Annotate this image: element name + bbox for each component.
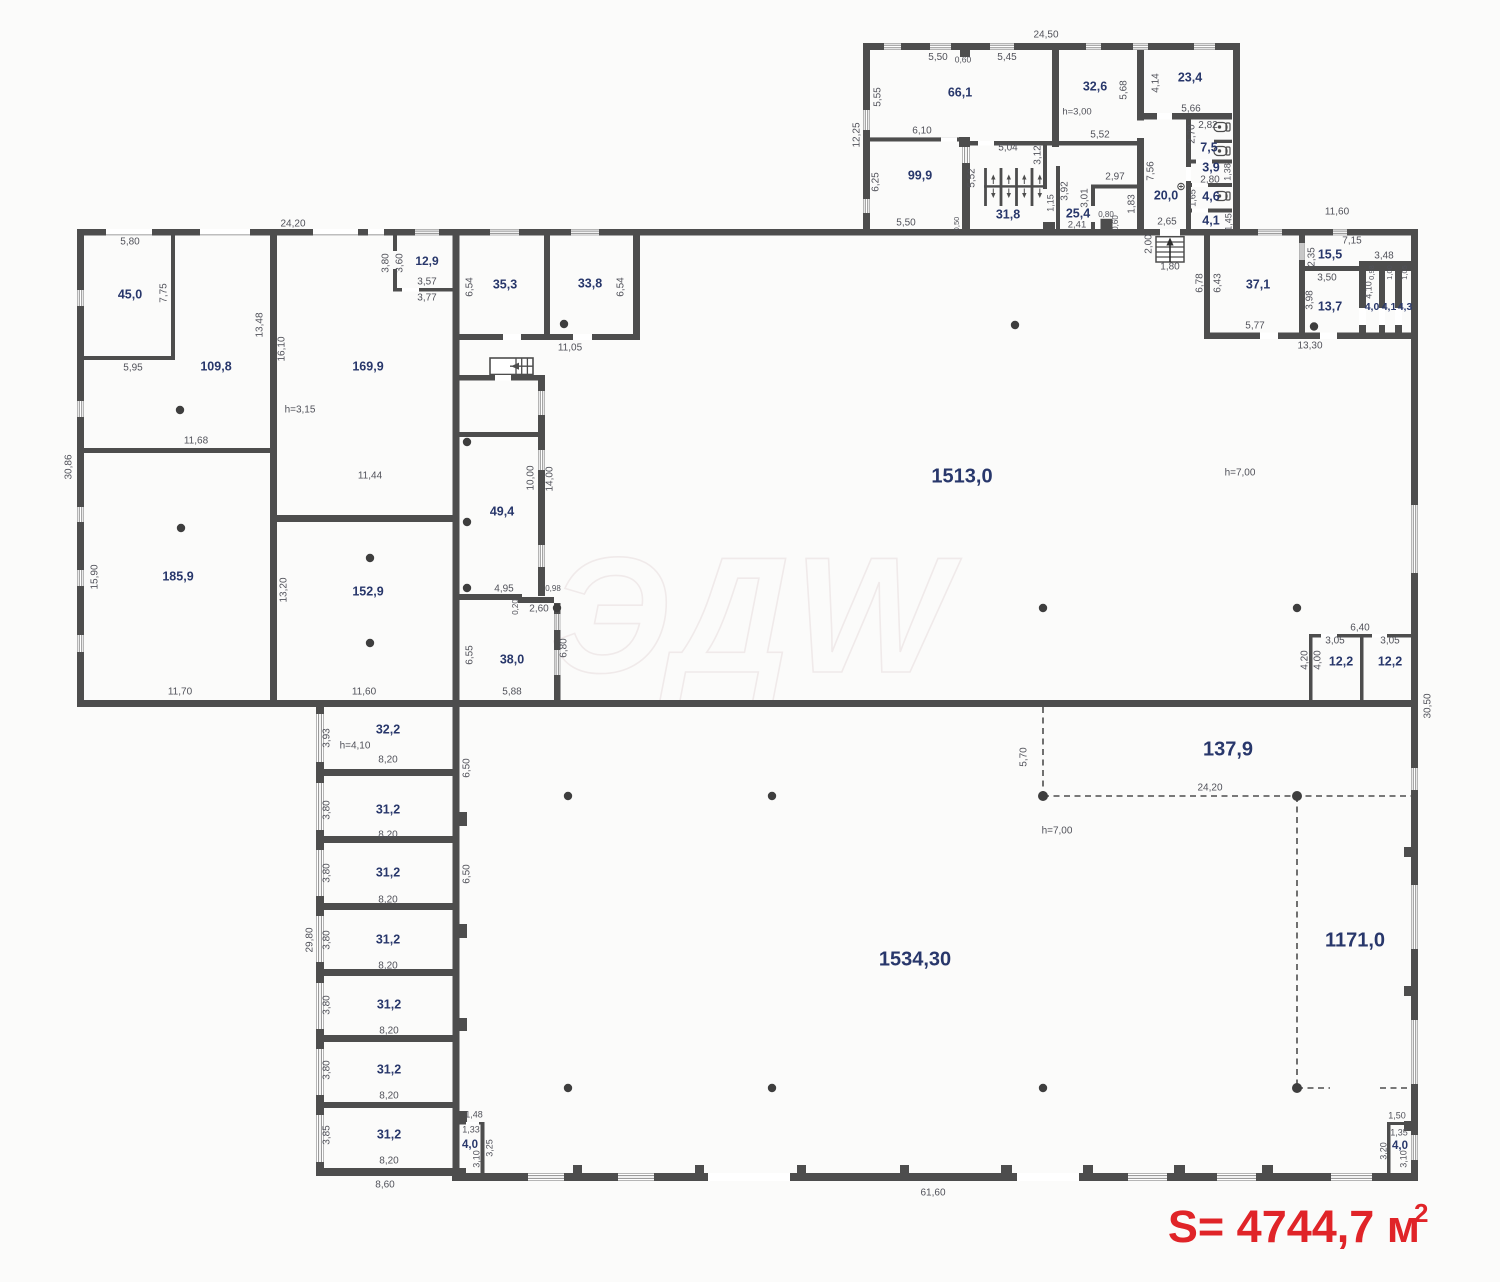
svg-text:1,65: 1,65 <box>1187 189 1197 207</box>
svg-text:3,80: 3,80 <box>322 863 333 883</box>
svg-text:1,00: 1,00 <box>1385 265 1394 280</box>
svg-text:5,70: 5,70 <box>1019 747 1030 767</box>
svg-text:24,50: 24,50 <box>1033 30 1058 41</box>
svg-text:8,60: 8,60 <box>375 1180 395 1191</box>
svg-text:3,10: 3,10 <box>1398 1150 1408 1168</box>
svg-text:30,50: 30,50 <box>1423 693 1434 718</box>
svg-text:5,66: 5,66 <box>1181 104 1201 115</box>
svg-text:8,20: 8,20 <box>379 1156 399 1167</box>
svg-text:3,12: 3,12 <box>1033 145 1044 165</box>
svg-text:1,35: 1,35 <box>1390 1127 1408 1137</box>
svg-text:3,85: 3,85 <box>322 1125 333 1145</box>
svg-text:h=3,00: h=3,00 <box>1062 107 1091 118</box>
svg-text:10,00: 10,00 <box>526 465 537 490</box>
svg-text:h=7,00: h=7,00 <box>1225 468 1256 479</box>
svg-text:2,35: 2,35 <box>1307 247 1318 267</box>
svg-text:0,98: 0,98 <box>1367 265 1376 280</box>
svg-text:33,8: 33,8 <box>578 276 602 290</box>
svg-text:12,25: 12,25 <box>852 122 863 147</box>
svg-text:5,52: 5,52 <box>967 168 978 188</box>
svg-text:5,04: 5,04 <box>998 143 1018 154</box>
svg-text:3,05: 3,05 <box>1380 636 1400 647</box>
svg-text:3,10: 3,10 <box>471 1150 481 1168</box>
svg-text:0,98: 0,98 <box>545 584 561 593</box>
svg-text:49,4: 49,4 <box>490 504 514 518</box>
svg-text:2,97: 2,97 <box>1105 172 1125 183</box>
svg-text:8,20: 8,20 <box>379 1026 399 1037</box>
svg-text:12,9: 12,9 <box>415 254 439 268</box>
svg-text:7,15: 7,15 <box>1342 236 1362 247</box>
svg-text:3,92: 3,92 <box>1060 181 1071 201</box>
svg-text:2: 2 <box>1414 1198 1428 1228</box>
svg-text:3,01: 3,01 <box>1080 188 1091 208</box>
svg-text:24,20: 24,20 <box>280 219 305 230</box>
svg-text:185,9: 185,9 <box>162 569 193 583</box>
svg-text:20,0: 20,0 <box>1154 188 1178 202</box>
svg-text:0,60: 0,60 <box>1111 215 1120 231</box>
svg-text:12,2: 12,2 <box>1329 654 1353 668</box>
svg-text:109,8: 109,8 <box>200 359 231 373</box>
svg-text:2,70: 2,70 <box>1187 124 1198 144</box>
svg-text:66,1: 66,1 <box>948 85 972 99</box>
svg-text:11,68: 11,68 <box>184 436 209 447</box>
svg-text:8,20: 8,20 <box>378 895 398 906</box>
svg-text:4,6: 4,6 <box>1202 189 1219 203</box>
svg-text:6,50: 6,50 <box>462 758 473 778</box>
svg-text:3,60: 3,60 <box>395 253 406 273</box>
svg-text:16,10: 16,10 <box>277 336 288 361</box>
svg-text:1,80: 1,80 <box>1160 262 1180 273</box>
svg-text:5,80: 5,80 <box>120 237 140 248</box>
svg-text:35,3: 35,3 <box>493 277 517 291</box>
svg-text:99,9: 99,9 <box>908 168 932 182</box>
svg-text:11,60: 11,60 <box>1325 207 1350 218</box>
svg-text:1,50: 1,50 <box>1388 1110 1406 1120</box>
svg-text:11,70: 11,70 <box>168 687 193 698</box>
svg-text:2,65: 2,65 <box>1157 217 1177 228</box>
svg-text:7,75: 7,75 <box>159 283 170 303</box>
svg-text:5,95: 5,95 <box>123 363 143 374</box>
svg-text:4,3: 4,3 <box>1398 301 1413 313</box>
svg-text:152,9: 152,9 <box>352 584 383 598</box>
svg-text:6,80: 6,80 <box>559 638 570 658</box>
svg-text:1,05: 1,05 <box>1400 265 1409 280</box>
svg-text:11,05: 11,05 <box>558 343 583 354</box>
svg-text:2,41: 2,41 <box>1068 220 1087 231</box>
svg-text:15,90: 15,90 <box>90 564 101 589</box>
svg-text:6,55: 6,55 <box>465 645 476 665</box>
svg-text:4,20: 4,20 <box>1300 650 1311 670</box>
svg-text:3,80: 3,80 <box>322 1060 333 1080</box>
svg-text:3,80: 3,80 <box>322 995 333 1015</box>
svg-text:1,33: 1,33 <box>462 1124 480 1134</box>
svg-text:11,44: 11,44 <box>358 471 383 482</box>
svg-text:5,55: 5,55 <box>873 87 884 107</box>
svg-text:5,45: 5,45 <box>997 52 1017 63</box>
svg-text:3,20: 3,20 <box>1378 1142 1388 1160</box>
svg-text:3,80: 3,80 <box>322 930 333 950</box>
svg-text:3,93: 3,93 <box>322 728 333 748</box>
svg-text:12,2: 12,2 <box>1378 654 1402 668</box>
svg-text:8,20: 8,20 <box>378 961 398 972</box>
svg-text:2,60: 2,60 <box>529 604 549 615</box>
svg-text:31,2: 31,2 <box>376 865 400 879</box>
svg-text:13,48: 13,48 <box>255 312 266 337</box>
svg-text:31,2: 31,2 <box>376 802 400 816</box>
svg-text:38,0: 38,0 <box>500 652 524 666</box>
svg-text:4,10: 4,10 <box>1363 281 1373 299</box>
svg-text:15,5: 15,5 <box>1318 247 1342 261</box>
svg-text:1,48: 1,48 <box>465 1109 483 1119</box>
svg-text:37,1: 37,1 <box>1246 277 1270 291</box>
svg-text:5,50: 5,50 <box>928 52 948 63</box>
svg-text:137,9: 137,9 <box>1203 738 1253 760</box>
svg-text:4,0: 4,0 <box>1365 301 1380 313</box>
svg-text:h=3,15: h=3,15 <box>285 405 316 416</box>
svg-text:7,56: 7,56 <box>1146 161 1157 181</box>
svg-text:1,38: 1,38 <box>1222 163 1232 181</box>
svg-text:32,2: 32,2 <box>376 722 400 736</box>
svg-text:14,00: 14,00 <box>545 466 556 491</box>
svg-text:32,6: 32,6 <box>1083 79 1107 93</box>
svg-text:1,15: 1,15 <box>1045 194 1055 212</box>
svg-text:169,9: 169,9 <box>352 359 383 373</box>
svg-text:8,20: 8,20 <box>378 830 398 841</box>
svg-text:23,4: 23,4 <box>1178 70 1202 84</box>
svg-text:6,43: 6,43 <box>1213 273 1224 293</box>
svg-text:3,77: 3,77 <box>417 293 437 304</box>
svg-text:31,2: 31,2 <box>376 932 400 946</box>
svg-text:2,00: 2,00 <box>1144 234 1155 254</box>
svg-text:6,40: 6,40 <box>1350 623 1370 634</box>
svg-text:31,2: 31,2 <box>377 1127 401 1141</box>
svg-text:3,80: 3,80 <box>322 800 333 820</box>
svg-text:h=7,00: h=7,00 <box>1042 826 1073 837</box>
svg-text:13,7: 13,7 <box>1318 299 1342 313</box>
svg-text:1534,30: 1534,30 <box>879 948 951 970</box>
svg-text:7,5: 7,5 <box>1200 140 1217 154</box>
svg-text:5,68: 5,68 <box>1119 80 1130 100</box>
svg-text:13,20: 13,20 <box>279 577 290 602</box>
svg-text:1,45: 1,45 <box>1223 213 1233 231</box>
svg-text:4,1: 4,1 <box>1382 301 1397 313</box>
svg-text:13,30: 13,30 <box>1297 341 1322 352</box>
svg-text:11,60: 11,60 <box>352 687 377 698</box>
svg-text:h=4,10: h=4,10 <box>340 741 371 752</box>
svg-text:ЭДW: ЭДW <box>550 523 962 707</box>
svg-text:3,9: 3,9 <box>1202 160 1219 174</box>
svg-text:3,25: 3,25 <box>484 1139 494 1157</box>
svg-text:5,50: 5,50 <box>896 218 916 229</box>
svg-text:3,48: 3,48 <box>1374 251 1394 262</box>
svg-text:5,77: 5,77 <box>1245 321 1265 332</box>
svg-text:3,98: 3,98 <box>1305 290 1316 310</box>
svg-text:29,80: 29,80 <box>305 927 316 952</box>
svg-text:3,57: 3,57 <box>417 277 437 288</box>
svg-text:8,20: 8,20 <box>379 1091 399 1102</box>
svg-text:2,80: 2,80 <box>1200 175 1220 186</box>
svg-text:6,10: 6,10 <box>912 126 932 137</box>
svg-text:6,25: 6,25 <box>871 172 882 192</box>
svg-text:4,0: 4,0 <box>462 1139 478 1151</box>
svg-text:4,00: 4,00 <box>1313 650 1324 670</box>
svg-text:4,95: 4,95 <box>494 584 514 595</box>
svg-text:1513,0: 1513,0 <box>931 465 992 487</box>
svg-text:30,86: 30,86 <box>64 454 75 479</box>
svg-text:6,54: 6,54 <box>616 277 627 297</box>
svg-text:3,05: 3,05 <box>1325 636 1345 647</box>
svg-text:8,20: 8,20 <box>378 755 398 766</box>
svg-text:6,54: 6,54 <box>465 277 476 297</box>
svg-text:31,2: 31,2 <box>377 997 401 1011</box>
svg-text:4,14: 4,14 <box>1151 73 1162 93</box>
svg-text:61,60: 61,60 <box>920 1188 945 1199</box>
svg-text:5,88: 5,88 <box>502 687 522 698</box>
svg-text:0,60: 0,60 <box>955 54 972 64</box>
svg-text:24,20: 24,20 <box>1197 783 1222 794</box>
svg-text:1,83: 1,83 <box>1127 194 1138 214</box>
svg-text:S= 4744,7 м: S= 4744,7 м <box>1168 1201 1420 1252</box>
svg-text:4,0: 4,0 <box>1392 1140 1408 1152</box>
svg-text:6,78: 6,78 <box>1195 273 1206 293</box>
svg-text:2,82: 2,82 <box>1198 120 1218 131</box>
svg-text:1171,0: 1171,0 <box>1325 929 1385 951</box>
svg-text:0,50: 0,50 <box>952 217 961 232</box>
svg-text:6,50: 6,50 <box>462 864 473 884</box>
svg-text:3,50: 3,50 <box>1317 273 1337 284</box>
svg-text:0,20: 0,20 <box>511 599 520 615</box>
svg-text:31,8: 31,8 <box>996 207 1020 221</box>
svg-text:5,52: 5,52 <box>1090 130 1110 141</box>
svg-text:45,0: 45,0 <box>118 287 142 301</box>
svg-text:3,80: 3,80 <box>381 253 392 273</box>
svg-text:31,2: 31,2 <box>377 1062 401 1076</box>
svg-text:4,1: 4,1 <box>1202 213 1219 227</box>
